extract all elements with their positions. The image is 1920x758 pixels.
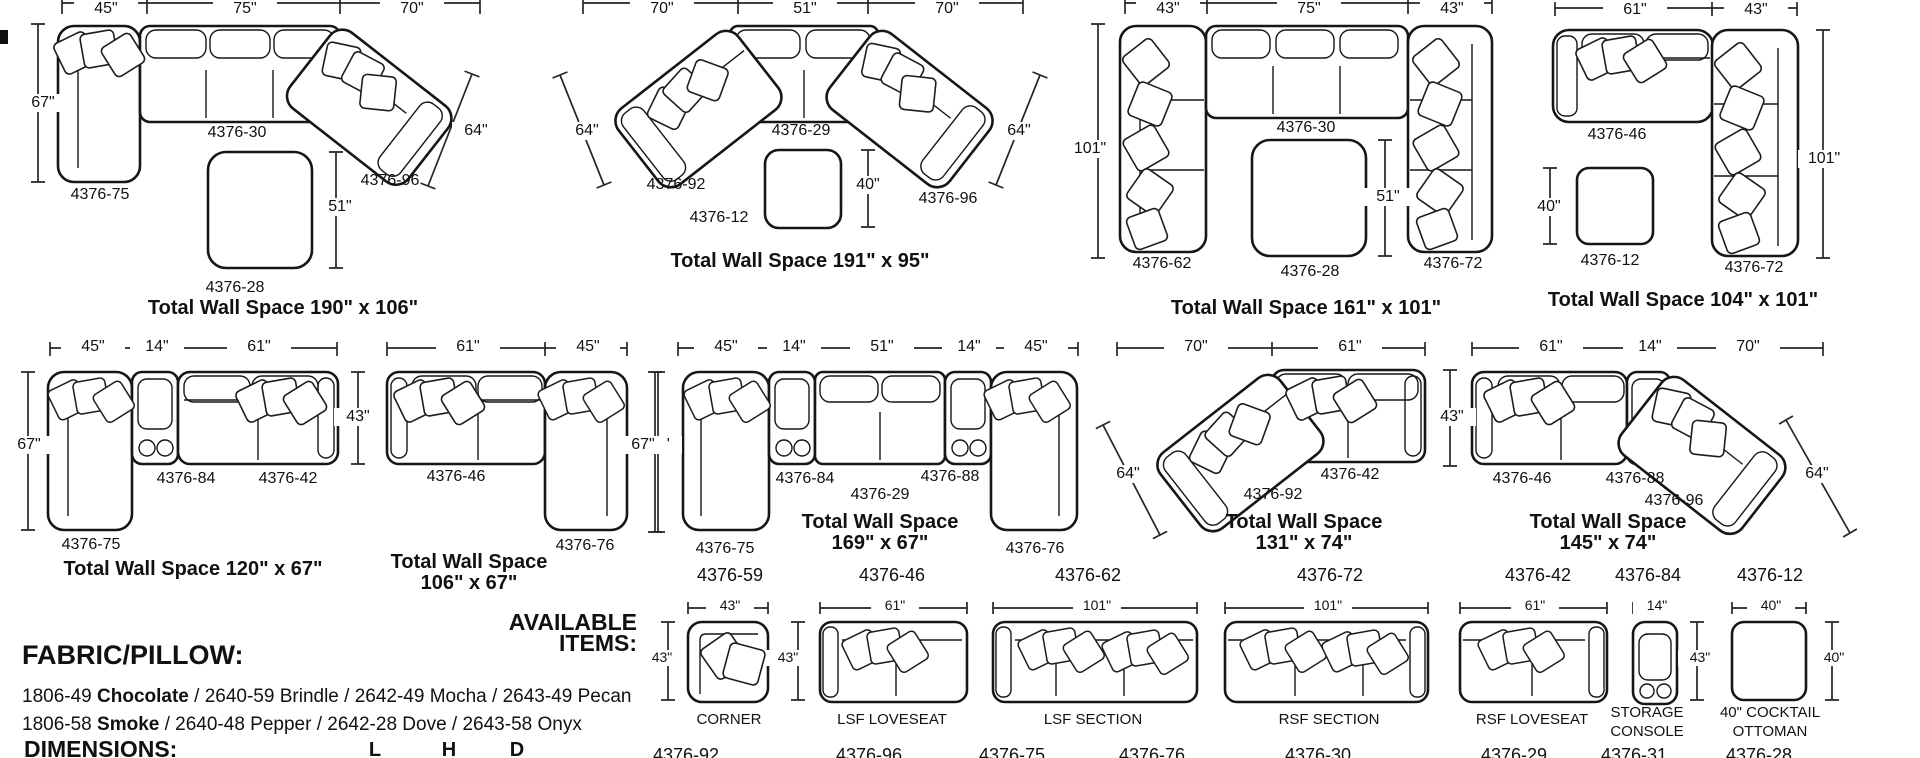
part-number-label: 4376-30 xyxy=(195,124,279,142)
part-number-label: 4376-75 xyxy=(58,186,142,204)
item-depth-label: 40" xyxy=(1812,650,1856,666)
item-part-number: 4376-12 xyxy=(1725,565,1815,585)
part-number-label: 4376-62 xyxy=(1120,255,1204,273)
wall-space-title: Total Wall Space xyxy=(1218,511,1390,533)
part-number-label: 4376-46 xyxy=(414,468,498,486)
part-number-label: 4376-12 xyxy=(1568,252,1652,270)
dim-label: 45" xyxy=(556,338,620,356)
item-width-label: 61" xyxy=(1511,598,1559,614)
dimensions-heading: DIMENSIONS: xyxy=(24,736,177,758)
available-items-heading: ITEMS: xyxy=(487,630,637,657)
page-edge-mark xyxy=(0,30,8,44)
dim-label: 70" xyxy=(915,0,979,18)
dim-label: 43" xyxy=(1724,1,1788,19)
item-width-label: 40" xyxy=(1747,598,1795,614)
wall-space-title: 169" x 67" xyxy=(794,532,966,554)
wall-space-title: Total Wall Space xyxy=(1520,511,1696,533)
bottom-part-number: 4376-29 xyxy=(1469,745,1559,758)
fabric-code: 1806-49 xyxy=(22,686,92,707)
dim-label: 70" xyxy=(1164,338,1228,356)
fabric-line-1: 1806-49 Chocolate / 2640-59 Brindle / 26… xyxy=(22,686,631,708)
part-number-label: 4376-42 xyxy=(1308,466,1392,484)
item-part-number: 4376-42 xyxy=(1493,565,1583,585)
part-number-label: 4376-28 xyxy=(1268,263,1352,281)
dim-label: 45" xyxy=(74,0,138,18)
item-depth-label: 43" xyxy=(640,650,684,666)
wall-space-title: 145" x 74" xyxy=(1520,532,1696,554)
wall-space-title: Total Wall Space xyxy=(384,551,554,573)
dim-label: 61" xyxy=(1318,338,1382,356)
dim-label: 40" xyxy=(844,176,892,194)
item-part-number: 4376-59 xyxy=(685,565,775,585)
part-number-label: 4376-75 xyxy=(49,536,133,554)
bottom-part-number: 4376-76 xyxy=(1107,745,1197,758)
dim-label: 64" xyxy=(995,122,1043,140)
fabric-code: 1806-58 xyxy=(22,714,92,735)
part-number-label: 4376-76 xyxy=(993,540,1077,558)
part-number-label: 4376-30 xyxy=(1264,119,1348,137)
dim-label: 70" xyxy=(380,0,444,18)
part-number-label: 4376-12 xyxy=(677,209,761,227)
item-caption: CORNER xyxy=(644,712,814,729)
dim-label: 61" xyxy=(1519,338,1583,356)
dim-label: 101" xyxy=(1064,140,1116,158)
dim-label: 51" xyxy=(316,198,364,216)
wall-space-title: Total Wall Space 120" x 67" xyxy=(43,558,343,580)
item-caption: CONSOLE xyxy=(1592,724,1702,741)
dim-label: 14" xyxy=(942,338,996,356)
item-depth-label: 43" xyxy=(1678,650,1722,666)
dim-label: 61" xyxy=(436,338,500,356)
fabric-rest: / 2640-59 Brindle / 2642-49 Mocha / 2643… xyxy=(189,686,632,707)
wall-space-title: Total Wall Space 161" x 101" xyxy=(1156,297,1456,319)
part-number-label: 4376-84 xyxy=(144,470,228,488)
part-number-label: 4376-84 xyxy=(763,470,847,488)
dim-label: 43" xyxy=(334,408,382,426)
part-number-label: 4376-92 xyxy=(1231,486,1315,504)
config-h-drawing xyxy=(1096,342,1457,539)
part-number-label: 4376-46 xyxy=(1480,470,1564,488)
bottom-part-number: 4376-28 xyxy=(1714,745,1804,758)
config-e-drawing xyxy=(21,342,365,530)
dim-label: 51" xyxy=(1364,188,1412,206)
dim-label: 64" xyxy=(1104,465,1152,483)
item-width-label: 43" xyxy=(706,598,754,614)
part-number-label: 4376-46 xyxy=(1575,126,1659,144)
part-number-label: 4376-96 xyxy=(1632,492,1716,510)
dim-label: 64" xyxy=(1793,465,1841,483)
part-number-label: 4376-88 xyxy=(1593,470,1677,488)
part-number-label: 4376-29 xyxy=(759,122,843,140)
part-number-label: 4376-88 xyxy=(908,468,992,486)
wall-space-title: 106" x 67" xyxy=(384,572,554,594)
part-number-label: 4376-29 xyxy=(838,486,922,504)
dim-label: 45" xyxy=(694,338,758,356)
bottom-part-number: 4376-96 xyxy=(824,745,914,758)
bottom-part-number: 4376-75 xyxy=(967,745,1057,758)
sectional-spec-sheet: 45" 75" 70" 67" 64" 51" 4376-75 4376-30 … xyxy=(0,0,1920,758)
item-caption: STORAGE xyxy=(1592,705,1702,722)
available-items-drawings xyxy=(661,602,1839,704)
dimensions-col-l: L xyxy=(355,739,395,758)
wall-space-title: Total Wall Space 190" x 106" xyxy=(133,297,433,319)
dim-label: 70" xyxy=(630,0,694,18)
part-number-label: 4376-28 xyxy=(193,279,277,297)
wall-space-title: Total Wall Space xyxy=(794,511,966,533)
fabric-color-bold: Smoke xyxy=(97,714,159,735)
dimensions-col-h: H xyxy=(429,739,469,758)
dim-label: 101" xyxy=(1798,150,1850,168)
item-caption: LSF LOVESEAT xyxy=(807,712,977,729)
fabric-pillow-heading: FABRIC/PILLOW: xyxy=(22,640,243,671)
dim-label: 61" xyxy=(1603,1,1667,19)
bottom-part-number: 4376-92 xyxy=(641,745,731,758)
item-part-number: 4376-46 xyxy=(847,565,937,585)
fabric-rest: / 2640-48 Pepper / 2642-28 Dove / 2643-5… xyxy=(159,714,582,735)
dim-label: 43" xyxy=(1428,408,1476,426)
dim-label: 14" xyxy=(130,338,184,356)
part-number-label: 4376-72 xyxy=(1411,255,1495,273)
part-number-label: 4376-76 xyxy=(543,537,627,555)
dim-label: 43" xyxy=(1136,0,1200,18)
item-width-label: 101" xyxy=(1073,598,1121,614)
item-caption: 40" COCKTAIL xyxy=(1700,705,1840,722)
dimensions-col-d: D xyxy=(497,739,537,758)
dim-label: 61" xyxy=(227,338,291,356)
dim-label: 75" xyxy=(213,0,277,18)
item-caption: RSF SECTION xyxy=(1244,712,1414,729)
dim-label: 45" xyxy=(1004,338,1068,356)
diagram-linework xyxy=(0,0,1920,758)
item-width-label: 61" xyxy=(871,598,919,614)
dim-label: 70" xyxy=(1716,338,1780,356)
dim-label: 67" xyxy=(19,94,67,112)
item-caption: OTTOMAN xyxy=(1700,724,1840,741)
dim-label: 43" xyxy=(1420,0,1484,18)
part-number-label: 4376-42 xyxy=(246,470,330,488)
wall-space-title: Total Wall Space 104" x 101" xyxy=(1535,289,1831,311)
dim-label: 64" xyxy=(452,122,500,140)
item-part-number: 4376-84 xyxy=(1603,565,1693,585)
part-number-label: 4376-96 xyxy=(906,190,990,208)
dim-label: 67" xyxy=(619,436,667,454)
dim-label: 51" xyxy=(773,0,837,18)
bottom-part-number: 4376-31 xyxy=(1589,745,1679,758)
fabric-color-bold: Chocolate xyxy=(97,686,189,707)
part-number-label: 4376-75 xyxy=(683,540,767,558)
item-width-label: 14" xyxy=(1633,598,1681,614)
dim-label: 14" xyxy=(1623,338,1677,356)
part-number-label: 4376-92 xyxy=(634,176,718,194)
dim-label: 67" xyxy=(5,436,53,454)
wall-space-title: 131" x 74" xyxy=(1218,532,1390,554)
item-width-label: 101" xyxy=(1304,598,1352,614)
part-number-label: 4376-72 xyxy=(1712,259,1796,277)
bottom-part-number: 4376-30 xyxy=(1273,745,1363,758)
dim-label: 75" xyxy=(1277,0,1341,18)
part-number-label: 4376-96 xyxy=(348,172,432,190)
item-part-number: 4376-72 xyxy=(1285,565,1375,585)
wall-space-title: Total Wall Space 191" x 95" xyxy=(660,250,940,272)
item-part-number: 4376-62 xyxy=(1043,565,1133,585)
item-caption: LSF SECTION xyxy=(1008,712,1178,729)
item-depth-label: 43" xyxy=(766,650,810,666)
dim-label: 45" xyxy=(61,338,125,356)
dim-label: 64" xyxy=(563,122,611,140)
fabric-line-2: 1806-58 Smoke / 2640-48 Pepper / 2642-28… xyxy=(22,714,582,736)
dim-label: 14" xyxy=(767,338,821,356)
dim-label: 40" xyxy=(1525,198,1573,216)
dim-label: 51" xyxy=(850,338,914,356)
